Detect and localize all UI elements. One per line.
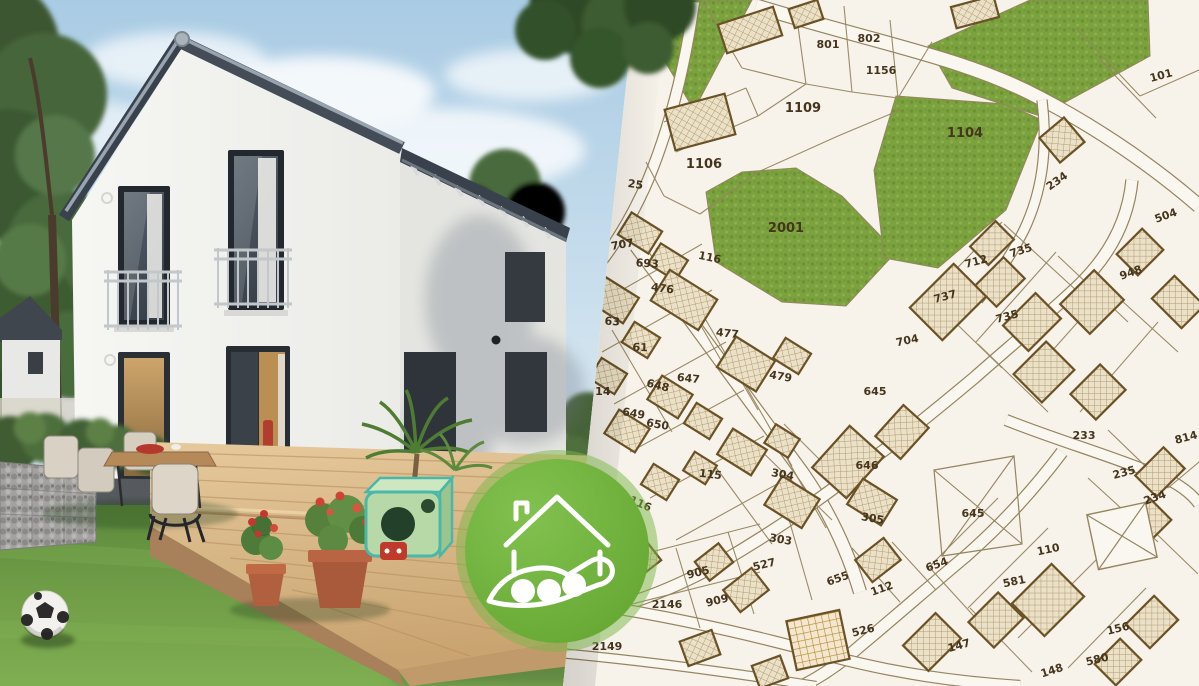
- real-estate-composite-image: 8018021156101110911041106252342001707116…: [0, 0, 1199, 686]
- parcel-number: 645: [962, 507, 985, 520]
- parcel-number: 233: [1073, 429, 1096, 442]
- badge-circle: [465, 459, 649, 643]
- parcel-number: 477: [715, 326, 739, 341]
- parcel-number: 802: [858, 32, 881, 45]
- ridge-cap: [175, 32, 189, 46]
- parcel-number: 1104: [947, 126, 983, 141]
- wall-lamp: [492, 336, 501, 345]
- play-cube: [366, 478, 452, 560]
- parcel-number: 646: [856, 459, 879, 472]
- parcel-number: 647: [676, 371, 700, 386]
- parcel-number: 2146: [652, 598, 683, 611]
- parcel-number: 801: [817, 38, 840, 51]
- parcel-number: 2001: [768, 221, 804, 236]
- window-upper-left: [114, 186, 174, 332]
- parcel-number: 1156: [866, 64, 897, 77]
- parcel-number: 1106: [686, 157, 722, 172]
- brand-badge: [456, 450, 658, 652]
- side-window: [505, 352, 547, 432]
- parcel-number: 645: [864, 385, 887, 398]
- scene-svg: 8018021156101110911041106252342001707116…: [0, 0, 1199, 686]
- parcel-number: 61: [632, 341, 648, 355]
- side-window: [505, 252, 545, 322]
- parcel-number: 1109: [785, 101, 821, 116]
- parcel-number: 115: [698, 467, 722, 482]
